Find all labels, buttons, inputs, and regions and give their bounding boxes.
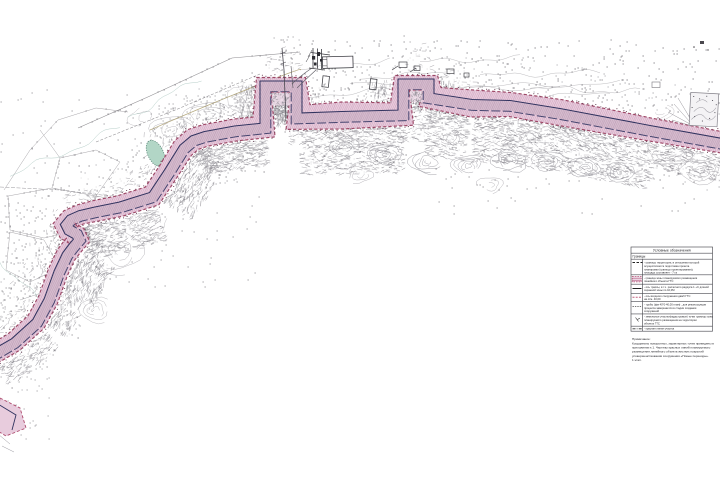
svg-text:1 этап.: 1 этап. [632,358,642,362]
svg-text:площадь составляет - 7 га: площадь составляет - 7 га [644,271,677,275]
svg-text:Условные обозначения: Условные обозначения [653,249,691,253]
svg-text:усовершенствования сооружения: усовершенствования сооружения «Новые пер… [632,354,709,358]
svg-text:планировки (границы проектиров: планировки (границы проектирования); [644,267,694,271]
svg-text:охранной зоны по 10,0М: охранной зоны по 10,0М [644,288,675,292]
svg-text:линейного объекта ГТС: линейного объекта ГТС [644,279,674,283]
svg-text:сооружений: сооружений [644,309,659,313]
svg-text:- ось входного сооружения дамб: - ось входного сооружения дамб ГТС [644,294,690,298]
svg-text:объекта ГТС: объекта ГТС [644,321,660,325]
svg-text:- границы территории, в отноше: - границы территории, в отношении которо… [644,261,700,265]
svg-text:- земельные участки(кадастровы: - земельные участки(кадастровые) точки г… [644,315,713,319]
svg-text:- красная линия участка: - красная линия участка [644,328,675,331]
svg-text:на отм. 40,00: на отм. 40,00 [644,297,661,301]
svg-text:Границы: Границы [633,255,646,259]
svg-text:- трубы (фм 40"0-40,00 план) ,: - трубы (фм 40"0-40,00 план) , для рекон… [644,302,707,306]
svg-text:- ось трассы, в т.ч. расчетно: - ось трассы, в т.ч. расчетного радиуса … [644,285,709,289]
